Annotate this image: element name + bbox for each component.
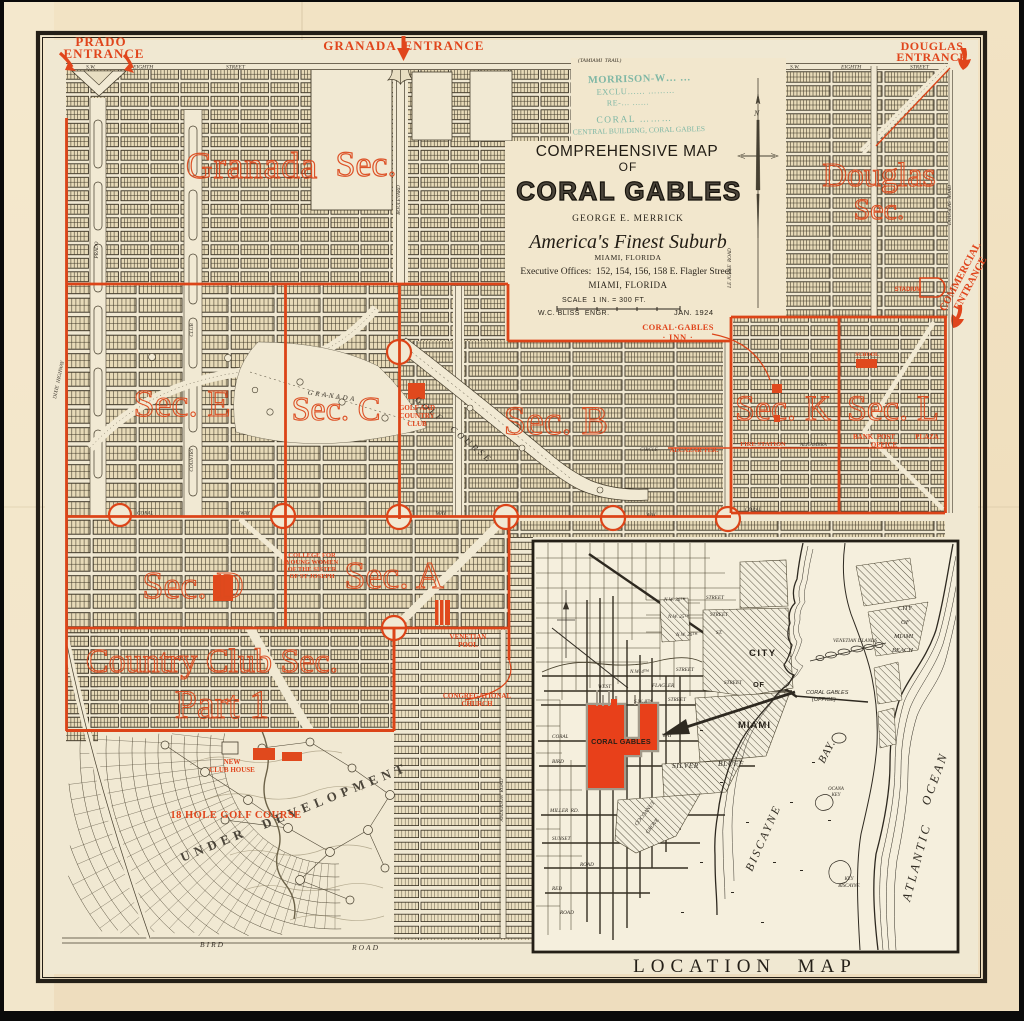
svg-text:BISCAYNE: BISCAYNE bbox=[838, 884, 860, 889]
svg-text:Executive Offices: 152, 154,: Executive Offices: 152, 154, 156, 158 E.… bbox=[520, 266, 732, 277]
svg-text:VENETIAN: VENETIAN bbox=[450, 633, 487, 641]
svg-text:18 HOLE GOLF COURSE: 18 HOLE GOLF COURSE bbox=[170, 810, 301, 821]
svg-text:BIRD: BIRD bbox=[552, 759, 564, 765]
svg-text:Sec. L: Sec. L bbox=[847, 388, 939, 428]
svg-text:ROAD: ROAD bbox=[579, 862, 594, 868]
svg-text:EIGHTH: EIGHTH bbox=[840, 65, 862, 71]
svg-text:BLUFF: BLUFF bbox=[718, 759, 744, 768]
svg-text:CITY: CITY bbox=[749, 648, 777, 659]
svg-text:VENETIAN ISLANDS: VENETIAN ISLANDS bbox=[833, 639, 878, 644]
svg-text:CORAL GABLES: CORAL GABLES bbox=[516, 176, 742, 206]
svg-text:Sec. E: Sec. E bbox=[133, 383, 230, 425]
svg-text:ENTRANCE: ENTRANCE bbox=[64, 46, 145, 61]
svg-text:PRADO: PRADO bbox=[94, 241, 100, 259]
svg-text:RED: RED bbox=[551, 886, 562, 892]
svg-text:N: N bbox=[753, 109, 760, 118]
svg-text:(OFFICE): (OFFICE) bbox=[812, 697, 836, 703]
svg-text:JAN. 1924: JAN. 1924 bbox=[674, 308, 714, 317]
svg-text:N.W. 26™: N.W. 26™ bbox=[675, 632, 697, 638]
svg-text:S.W.: S.W. bbox=[790, 65, 800, 71]
svg-text:Sec. B: Sec. B bbox=[504, 398, 608, 443]
svg-text:OF: OF bbox=[753, 680, 764, 689]
svg-text:WAY: WAY bbox=[662, 733, 673, 739]
svg-text:CORAL GABLES: CORAL GABLES bbox=[591, 737, 651, 746]
svg-text:COUNTRY: COUNTRY bbox=[189, 447, 195, 471]
svg-text:KEY: KEY bbox=[844, 877, 855, 882]
svg-text:WAY: WAY bbox=[240, 511, 251, 517]
svg-text:CORAL ………: CORAL ……… bbox=[596, 114, 672, 126]
svg-text:OF: OF bbox=[901, 619, 911, 626]
svg-text:STADIUM: STADIUM bbox=[895, 287, 922, 293]
svg-text:ST.: ST. bbox=[716, 630, 723, 636]
svg-text:MILLER RD.: MILLER RD. bbox=[549, 808, 579, 814]
svg-text:CONGREGATIONAL: CONGREGATIONAL bbox=[443, 692, 512, 700]
svg-text:WEST: WEST bbox=[598, 684, 612, 690]
svg-text:GRANADA: GRANADA bbox=[323, 38, 396, 53]
svg-text:ALHAMBRA: ALHAMBRA bbox=[799, 442, 828, 448]
svg-text:BOULEVARD: BOULEVARD bbox=[396, 185, 402, 215]
svg-text:STREET: STREET bbox=[710, 612, 729, 618]
svg-text:Sec. C: Sec. C bbox=[292, 391, 381, 428]
svg-text:CLUB: CLUB bbox=[189, 323, 195, 337]
svg-text:LOCATION MAP: LOCATION MAP bbox=[633, 956, 857, 977]
svg-text:STREET: STREET bbox=[910, 65, 930, 71]
svg-text:CORAL: CORAL bbox=[552, 734, 569, 740]
svg-text:Sec. A: Sec. A bbox=[344, 555, 444, 597]
svg-text:BANK POST: BANK POST bbox=[853, 433, 895, 441]
svg-text:BIRD: BIRD bbox=[200, 940, 225, 949]
svg-text:CORAL·GABLES: CORAL·GABLES bbox=[642, 322, 714, 332]
svg-text:MIAMI, FLORIDA: MIAMI, FLORIDA bbox=[595, 253, 662, 262]
svg-text:· INN ·: · INN · bbox=[662, 332, 693, 342]
svg-text:ANDERSON ROAD: ANDERSON ROAD bbox=[499, 778, 505, 822]
svg-text:CITY: CITY bbox=[898, 605, 913, 612]
svg-text:GEORGE E. MERRICK: GEORGE E. MERRICK bbox=[572, 214, 684, 224]
svg-text:FLAGLER: FLAGLER bbox=[651, 683, 675, 689]
svg-text:S.W. 8™: S.W. 8™ bbox=[634, 699, 652, 705]
svg-text:STREET: STREET bbox=[668, 697, 687, 703]
svg-text:America's Finest Suburb: America's Finest Suburb bbox=[527, 231, 727, 253]
svg-text:Douglas: Douglas bbox=[822, 157, 935, 194]
svg-text:WAY: WAY bbox=[436, 511, 447, 517]
svg-text:MIAMI, FLORIDA: MIAMI, FLORIDA bbox=[589, 280, 668, 290]
svg-text:PLAZA: PLAZA bbox=[915, 433, 939, 441]
svg-text:ENTRANCE: ENTRANCE bbox=[404, 38, 485, 53]
svg-text:OF ST JOSEPH: OF ST JOSEPH bbox=[289, 573, 334, 580]
svg-text:RE-… ……: RE-… …… bbox=[607, 97, 650, 107]
svg-text:Granada: Granada bbox=[186, 146, 318, 187]
svg-text:CIRCLE: CIRCLE bbox=[640, 447, 659, 453]
svg-text:KEY: KEY bbox=[831, 793, 842, 798]
svg-text:POOL: POOL bbox=[458, 641, 478, 649]
svg-text:DOUGLAS ROAD: DOUGLAS ROAD bbox=[947, 185, 953, 226]
svg-text:SUNSET: SUNSET bbox=[552, 836, 572, 842]
svg-text:CORAL: CORAL bbox=[137, 511, 154, 517]
svg-text:SCALE 1 IN. = 300 FT.: SCALE 1 IN. = 300 FT. bbox=[562, 297, 646, 304]
svg-text:CLUB HOUSE: CLUB HOUSE bbox=[209, 766, 255, 774]
svg-text:EIGHTH: EIGHTH bbox=[132, 65, 154, 71]
svg-text:ENTRANCE: ENTRANCE bbox=[896, 50, 967, 64]
svg-text:SILVER: SILVER bbox=[672, 761, 699, 770]
svg-text:Sec. K: Sec. K bbox=[735, 388, 831, 428]
svg-text:OF THE SISTER: OF THE SISTER bbox=[288, 566, 337, 573]
svg-text:CORAL: CORAL bbox=[745, 507, 762, 513]
svg-text:N.W. 25™: N.W. 25™ bbox=[667, 614, 689, 620]
svg-text:CHURCH: CHURCH bbox=[461, 700, 493, 708]
svg-text:SCHOOL: SCHOOL bbox=[855, 352, 879, 358]
svg-text:MIAMI: MIAMI bbox=[738, 720, 771, 731]
svg-text:OFFICE: OFFICE bbox=[871, 441, 898, 449]
svg-text:ROAD: ROAD bbox=[351, 943, 380, 952]
svg-text:NEW: NEW bbox=[224, 758, 241, 766]
svg-text:OF: OF bbox=[619, 160, 638, 174]
svg-text:Sec.: Sec. bbox=[854, 193, 905, 226]
svg-text:YOUNG WOMEN: YOUNG WOMEN bbox=[286, 559, 339, 566]
svg-text:STREET: STREET bbox=[226, 65, 246, 71]
svg-text:W.C. BLISS ENGR.: W.C. BLISS ENGR. bbox=[538, 310, 610, 317]
svg-text:N.W. 4™: N.W. 4™ bbox=[629, 668, 649, 675]
svg-text:COLLEGE FOR: COLLEGE FOR bbox=[288, 552, 336, 559]
svg-text:CLUB: CLUB bbox=[407, 420, 427, 428]
svg-text:ALCAZAR TER.: ALCAZAR TER. bbox=[670, 447, 719, 454]
svg-text:MIAMI: MIAMI bbox=[893, 633, 914, 640]
svg-text:EXCLU…… ………: EXCLU…… ……… bbox=[596, 85, 675, 97]
svg-text:Part 1: Part 1 bbox=[175, 682, 269, 727]
svg-text:Sec. D: Sec. D bbox=[142, 565, 243, 607]
svg-text:N.W. 36™: N.W. 36™ bbox=[663, 597, 685, 603]
svg-text:BEACH: BEACH bbox=[892, 647, 913, 654]
svg-text:ROAD: ROAD bbox=[559, 910, 574, 916]
svg-text:OCANA: OCANA bbox=[828, 787, 844, 792]
svg-text:FIRE STATION: FIRE STATION bbox=[740, 441, 786, 448]
svg-text:Country Club Sec.: Country Club Sec. bbox=[86, 643, 338, 680]
svg-text:STREET: STREET bbox=[724, 680, 743, 686]
svg-text:WAY: WAY bbox=[646, 512, 657, 518]
svg-text:STREET: STREET bbox=[676, 667, 695, 673]
svg-text:COMPREHENSIVE MAP: COMPREHENSIVE MAP bbox=[536, 143, 718, 160]
svg-text:(TAMIAMI TRAIL): (TAMIAMI TRAIL) bbox=[578, 57, 621, 64]
svg-text:CORAL GABLES: CORAL GABLES bbox=[806, 690, 849, 696]
svg-text:LE JUENE ROAD: LE JUENE ROAD bbox=[727, 248, 733, 289]
svg-text:S.W.: S.W. bbox=[86, 65, 96, 71]
svg-text:STREET: STREET bbox=[706, 595, 725, 601]
svg-text:Sec.: Sec. bbox=[336, 144, 397, 184]
